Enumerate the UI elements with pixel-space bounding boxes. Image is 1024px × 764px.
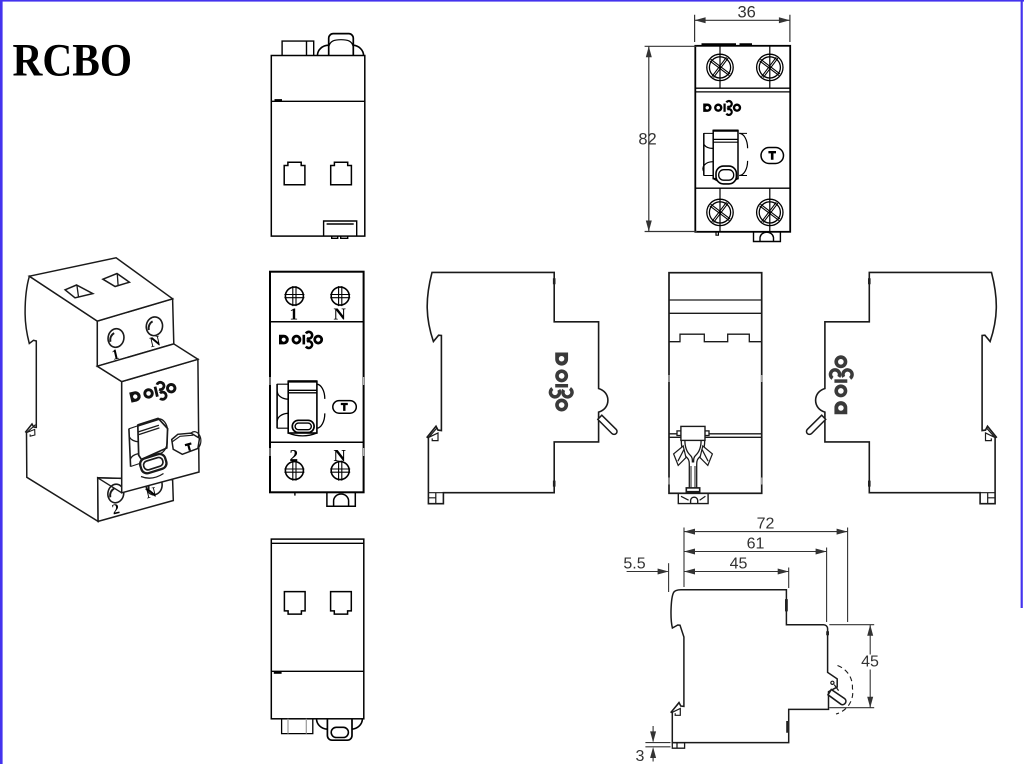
svg-text:3: 3 <box>636 748 645 764</box>
svg-text:1: 1 <box>290 305 299 324</box>
svg-text:45: 45 <box>861 653 879 670</box>
svg-text:82: 82 <box>638 131 656 149</box>
svg-text:36: 36 <box>738 4 756 22</box>
svg-text:45: 45 <box>730 556 748 573</box>
svg-text:N: N <box>334 446 347 465</box>
svg-text:72: 72 <box>757 516 775 533</box>
svg-text:2: 2 <box>290 446 299 465</box>
svg-text:N: N <box>334 305 347 324</box>
svg-text:61: 61 <box>747 536 765 553</box>
svg-text:5.5: 5.5 <box>623 556 645 573</box>
svg-text:RCBO: RCBO <box>13 34 133 86</box>
